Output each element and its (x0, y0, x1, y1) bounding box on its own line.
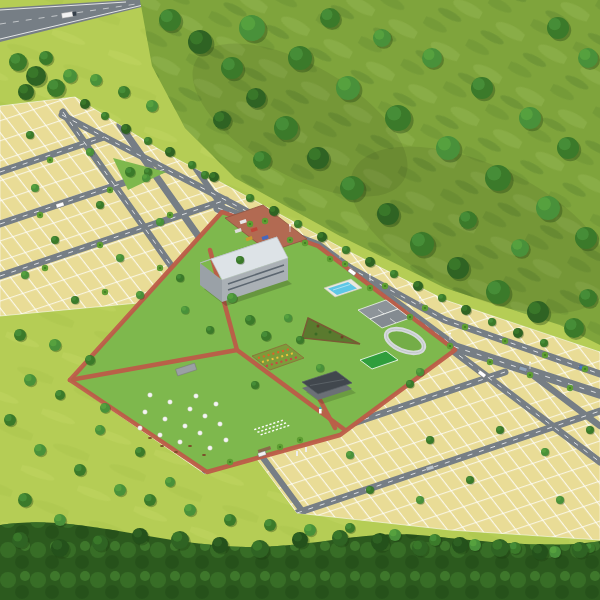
tree-highlight (247, 194, 251, 198)
palm-tree-crown (169, 214, 171, 216)
tree-highlight (225, 515, 232, 522)
tree-highlight (133, 529, 142, 538)
street-light-lamp (449, 333, 451, 335)
tree-highlight (254, 152, 264, 162)
deer-figure (202, 454, 206, 456)
lawn-table (218, 422, 223, 427)
tree-highlight (117, 254, 121, 258)
deer-figure (148, 437, 152, 439)
tree-highlight (86, 356, 92, 362)
tree-highlight (317, 364, 321, 368)
tree-highlight (413, 541, 422, 550)
palm-tree-crown (159, 267, 161, 269)
tree-highlight (374, 30, 384, 40)
tree-highlight (91, 75, 98, 82)
palm-tree-crown (299, 439, 301, 441)
tree-highlight (557, 496, 561, 500)
tree-highlight (241, 16, 255, 30)
tree-highlight (202, 171, 206, 175)
tree-highlight (145, 137, 149, 141)
tree-highlight (52, 236, 56, 240)
tree-highlight (285, 314, 289, 318)
tree-highlight (580, 290, 590, 300)
palm-tree-crown (39, 214, 41, 216)
palm-tree-crown (529, 374, 531, 376)
palm-tree-crown (584, 368, 586, 370)
tree-highlight (35, 445, 42, 452)
palm-tree-crown (99, 244, 101, 246)
tree-highlight (27, 131, 31, 135)
tree-highlight (136, 448, 142, 454)
tree-highlight (550, 547, 557, 554)
tree-highlight (309, 148, 321, 160)
palm-tree-crown (344, 263, 346, 265)
tree-highlight (488, 281, 501, 294)
tree-highlight (262, 332, 268, 338)
tree-highlight (414, 282, 420, 288)
tree-highlight (177, 274, 181, 278)
tree-highlight (223, 58, 235, 70)
palm-tree-crown (249, 223, 251, 225)
tree-highlight (50, 340, 57, 347)
lawn-table (188, 407, 193, 412)
tree-highlight (318, 233, 324, 239)
tree-highlight (347, 451, 351, 455)
lawn-table (208, 446, 213, 451)
tree-highlight (533, 545, 542, 554)
palm-tree-crown (504, 340, 506, 342)
tree-highlight (492, 540, 502, 550)
tree-highlight (52, 540, 62, 550)
tree-highlight (28, 67, 39, 78)
palm-tree-crown (49, 159, 51, 161)
tree-highlight (487, 166, 501, 180)
tree-highlight (97, 201, 101, 205)
tree-highlight (19, 85, 28, 94)
lawn-table (214, 402, 219, 407)
lawn-table (198, 431, 203, 436)
tree-highlight (182, 306, 186, 310)
tree-highlight (72, 296, 76, 300)
tree-highlight (214, 112, 224, 122)
tree-highlight (101, 404, 107, 410)
tree-highlight (412, 233, 425, 246)
lawn-table (138, 426, 143, 431)
tree-highlight (5, 415, 12, 422)
palm-tree-crown (449, 345, 451, 347)
lawn-table (158, 433, 163, 438)
tree-highlight (207, 326, 211, 330)
tree-highlight (276, 117, 289, 130)
tree-highlight (305, 525, 312, 532)
tree-highlight (338, 77, 351, 90)
tree-highlight (342, 177, 355, 190)
tree-highlight (19, 494, 27, 502)
tree-highlight (541, 339, 545, 343)
tree-highlight (577, 228, 589, 240)
lawn-table (143, 410, 148, 415)
palm-tree-crown (544, 354, 546, 356)
tree-highlight (81, 100, 87, 106)
palm-tree-crown (229, 461, 231, 463)
tree-highlight (549, 18, 561, 30)
tree-highlight (13, 533, 22, 542)
tree-highlight (210, 173, 216, 179)
tree-highlight (290, 47, 303, 60)
tree-highlight (32, 184, 36, 188)
tree-highlight (510, 543, 517, 550)
tree-highlight (189, 161, 193, 165)
tree-highlight (161, 10, 173, 22)
lawn-table (224, 438, 229, 443)
tree-highlight (366, 258, 372, 264)
tree-highlight (126, 168, 132, 174)
street-light-lamp (419, 297, 421, 299)
tree-highlight (10, 54, 20, 64)
tree-highlight (427, 436, 431, 440)
palm-tree-crown (409, 316, 411, 318)
tree-highlight (166, 148, 172, 154)
tree-highlight (248, 89, 259, 100)
tree-highlight (580, 49, 591, 60)
palm-tree-crown (289, 239, 291, 241)
deer-figure (160, 445, 164, 447)
tree-highlight (512, 240, 522, 250)
deer-figure (174, 451, 178, 453)
tree-highlight (497, 426, 501, 430)
tree-highlight (424, 49, 435, 60)
tree-highlight (333, 531, 342, 540)
palm-tree-crown (264, 220, 266, 222)
palm-tree-crown (384, 285, 386, 287)
tree-highlight (122, 125, 128, 131)
lawn-table (168, 400, 173, 405)
palm-tree-crown (104, 291, 106, 293)
tree-highlight (252, 541, 262, 551)
tree-highlight (566, 319, 577, 330)
signboard (319, 407, 322, 414)
tree-highlight (430, 535, 437, 542)
palm-tree-crown (329, 258, 331, 260)
lawn-table (183, 424, 188, 429)
palm-tree-crown (464, 326, 466, 328)
lawn-table (163, 417, 168, 422)
tree-highlight (529, 302, 541, 314)
tree-highlight (213, 538, 222, 547)
lawn-table (203, 414, 208, 419)
palm-tree-crown (109, 189, 111, 191)
aerial-render-viewport (0, 0, 600, 600)
palm-tree-crown (304, 242, 306, 244)
tree-highlight (438, 137, 451, 150)
tree-highlight (185, 505, 192, 512)
tree-highlight (489, 318, 493, 322)
tree-highlight (559, 138, 571, 150)
tree-highlight (93, 536, 102, 545)
tree-highlight (48, 80, 58, 90)
tree-highlight (145, 168, 149, 172)
tree-highlight (246, 316, 252, 322)
tree-highlight (322, 9, 333, 20)
tree-highlight (190, 31, 203, 44)
tree-highlight (521, 108, 533, 120)
street-light-lamp (339, 251, 341, 253)
tree-highlight (460, 212, 470, 222)
tree-highlight (538, 197, 551, 210)
palm-tree-crown (279, 446, 281, 448)
deer-figure (188, 445, 192, 447)
palm-tree-crown (489, 361, 491, 363)
tree-highlight (573, 543, 582, 552)
palm-tree-crown (424, 307, 426, 309)
tree-highlight (115, 485, 122, 492)
tree-highlight (25, 375, 32, 382)
tree-highlight (22, 271, 26, 275)
palm-tree-crown (44, 267, 46, 269)
lawn-table (194, 394, 199, 399)
palm-tree-crown (369, 287, 371, 289)
scene-aerial-render (0, 0, 600, 600)
tree-highlight (346, 524, 352, 530)
tree-highlight (453, 538, 462, 547)
tree-highlight (467, 476, 471, 480)
tree-highlight (587, 426, 591, 430)
tree-highlight (470, 540, 477, 547)
street-light-lamp (529, 362, 531, 364)
tree-highlight (137, 291, 141, 295)
tree-highlight (75, 465, 82, 472)
tree-highlight (372, 534, 382, 544)
tree-highlight (542, 448, 546, 452)
tree-highlight (228, 294, 234, 300)
tree-highlight (387, 106, 401, 120)
tree-highlight (265, 520, 272, 527)
tree-highlight (157, 218, 161, 222)
tree-highlight (379, 204, 391, 216)
street-light-lamp (289, 225, 291, 227)
tree-highlight (96, 426, 102, 432)
tree-highlight (143, 174, 147, 178)
tree-highlight (367, 486, 371, 490)
tree-highlight (172, 532, 182, 542)
tree-highlight (297, 336, 301, 340)
tree-highlight (514, 329, 520, 335)
tree-highlight (343, 246, 347, 250)
tree-highlight (270, 207, 276, 213)
tree-highlight (56, 391, 62, 397)
tree-highlight (55, 515, 62, 522)
tree-highlight (473, 78, 485, 90)
tree-highlight (40, 52, 48, 60)
tree-highlight (295, 220, 299, 224)
tree-highlight (390, 530, 397, 537)
tree-highlight (293, 533, 302, 542)
tree-highlight (145, 495, 152, 502)
palm-tree-crown (569, 387, 571, 389)
tree-highlight (252, 381, 256, 385)
tree-highlight (147, 101, 154, 108)
tree-highlight (237, 256, 241, 260)
lawn-table (178, 440, 183, 445)
tree-highlight (64, 70, 72, 78)
tree-highlight (407, 380, 411, 384)
tree-highlight (417, 496, 421, 500)
street-light-lamp (369, 274, 371, 276)
tree-highlight (449, 258, 461, 270)
tree-highlight (119, 87, 126, 94)
tree-highlight (391, 270, 395, 274)
tree-highlight (15, 330, 22, 337)
tree-highlight (102, 112, 106, 116)
tree-highlight (462, 306, 468, 312)
lawn-table (148, 393, 153, 398)
tree-highlight (417, 368, 421, 372)
tree-highlight (439, 294, 443, 298)
tree-highlight (166, 478, 172, 484)
tree-highlight (87, 148, 91, 152)
